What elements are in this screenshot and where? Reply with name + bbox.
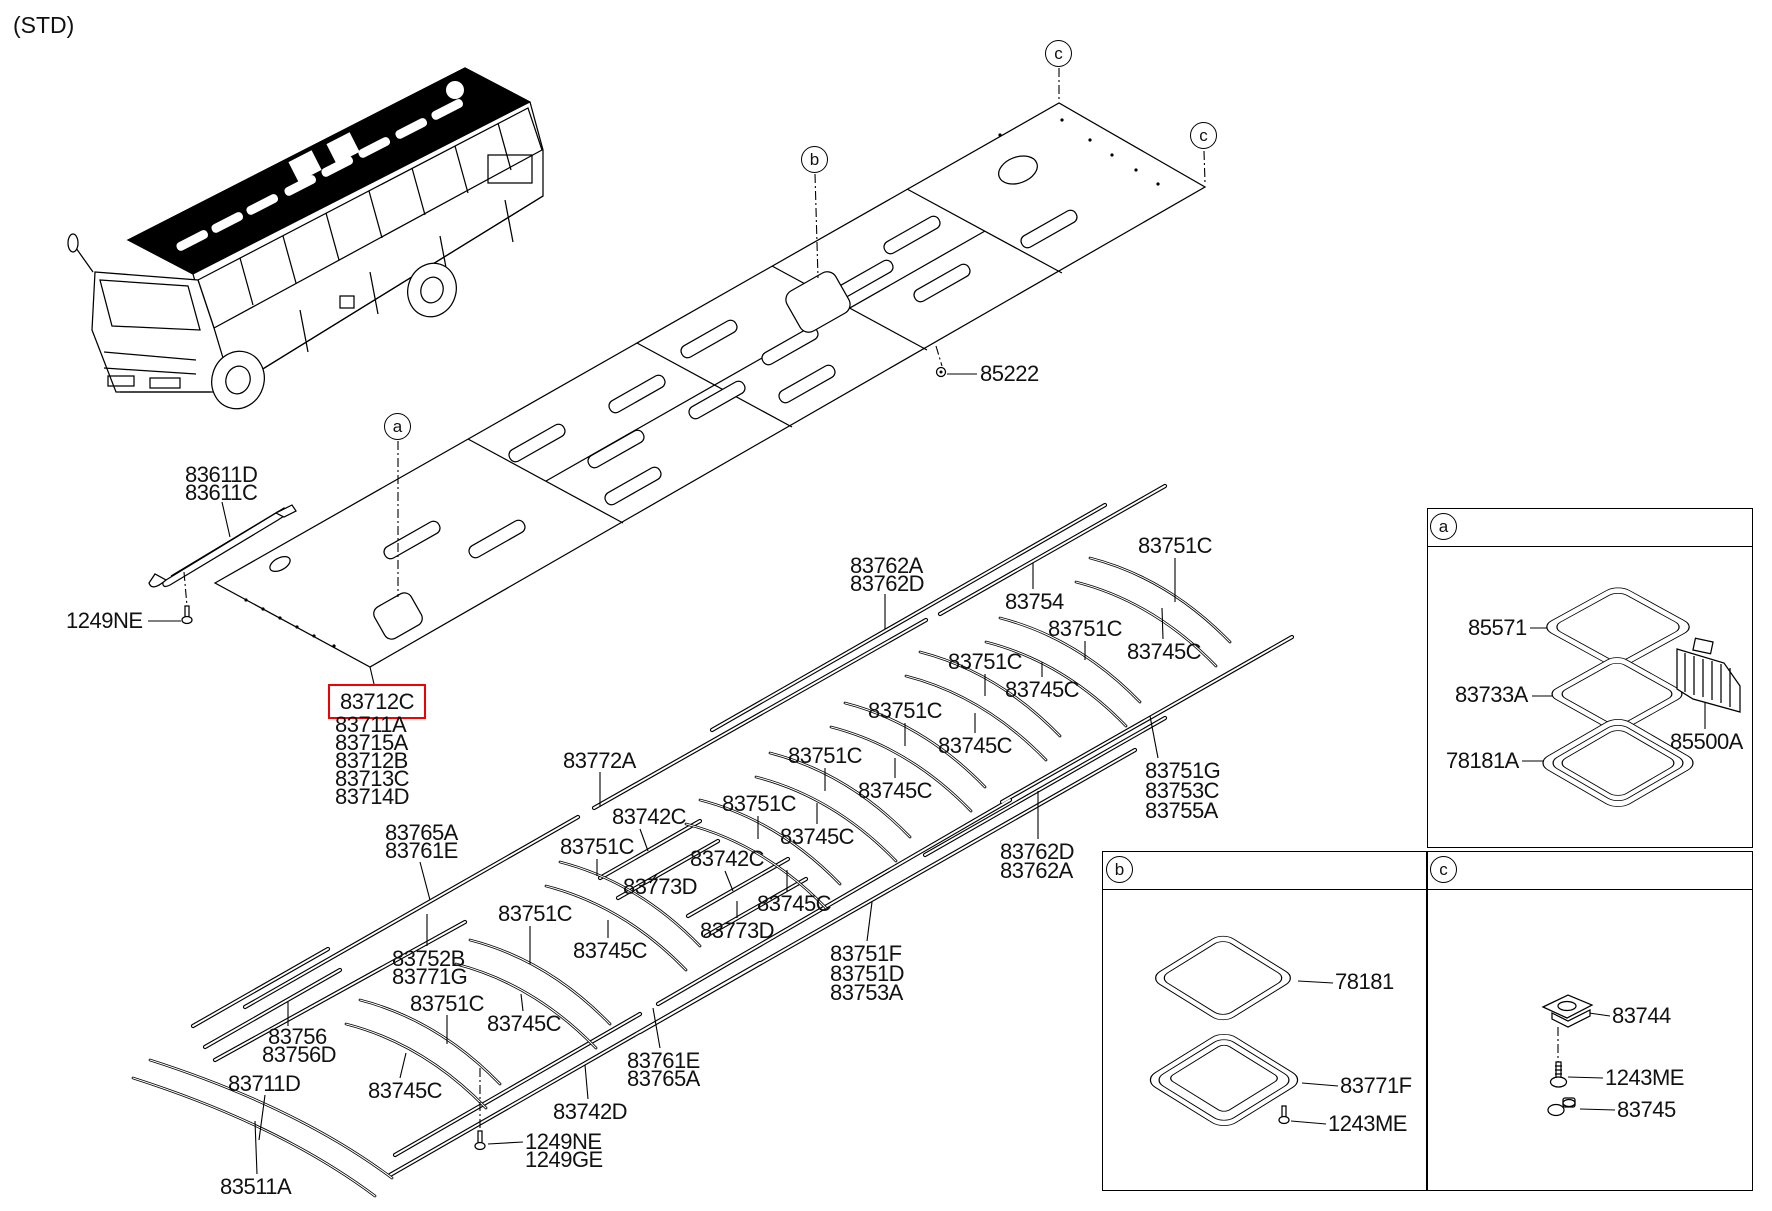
part-label-83751C: 83751C (560, 836, 634, 858)
part-label-83765A: 83765A (627, 1068, 700, 1090)
part-label-83751C: 83751C (948, 651, 1022, 673)
part-label-83714D: 83714D (335, 786, 409, 808)
part-label-83751C: 83751C (1138, 535, 1212, 557)
part-label-83745C: 83745C (938, 735, 1012, 757)
variant-tag: (STD) (13, 12, 74, 39)
part-label-83755A: 83755A (1145, 800, 1218, 822)
part-label-83745C: 83745C (573, 940, 647, 962)
part-label-83753A: 83753A (830, 982, 903, 1004)
part-label-83733A: 83733A (1455, 684, 1528, 706)
part-label-83771G: 83771G (392, 966, 467, 988)
part-label-83751C: 83751C (410, 993, 484, 1015)
part-label-85500A: 85500A (1670, 731, 1743, 753)
part-label-1243ME: 1243ME (1605, 1067, 1684, 1089)
detail-box-c-tag: c (1430, 856, 1457, 883)
detail-box-a-tag: a (1430, 513, 1457, 540)
part-label-83751C: 83751C (498, 903, 572, 925)
callout-c1: c (1045, 40, 1072, 67)
part-label-83756D: 83756D (262, 1044, 336, 1066)
part-label-83711D: 83711D (228, 1073, 300, 1095)
part-label-83751C: 83751C (722, 793, 796, 815)
part-label-83712C: 83712C (340, 689, 414, 715)
part-label-83745: 83745 (1617, 1099, 1676, 1121)
callout-c2: c (1190, 122, 1217, 149)
part-label-83754: 83754 (1005, 591, 1064, 613)
part-label-83773D: 83773D (623, 876, 697, 898)
part-label-1249GE: 1249GE (525, 1149, 603, 1171)
part-label-83745C: 83745C (757, 893, 831, 915)
part-label-83745C: 83745C (487, 1013, 561, 1035)
part-label-83762A: 83762A (1000, 860, 1073, 882)
part-label-85222: 85222 (980, 363, 1039, 385)
part-label-83511A: 83511A (220, 1176, 291, 1198)
detail-box-a (1427, 508, 1753, 848)
part-label-78181: 78181 (1335, 971, 1394, 993)
part-label-85571: 85571 (1468, 617, 1527, 639)
part-label-78181A: 78181A (1446, 750, 1519, 772)
part-label-83773D: 83773D (700, 920, 774, 942)
part-label-83742C: 83742C (690, 848, 764, 870)
part-label-83745C: 83745C (858, 780, 932, 802)
part-label-83745C: 83745C (1127, 641, 1201, 663)
callout-b: b (801, 146, 828, 173)
headlining-panel-strip (215, 103, 1205, 667)
part-label-83611C: 83611C (185, 482, 257, 504)
detail-box-c (1427, 851, 1753, 1191)
part-label-1249NE-left: 1249NE (66, 610, 143, 632)
part-label-83751C: 83751C (788, 745, 862, 767)
part-label-83761E: 83761E (385, 840, 458, 862)
part-label-83751C: 83751C (868, 700, 942, 722)
part-label-83745C: 83745C (780, 826, 854, 848)
callout-a: a (384, 413, 411, 440)
part-label-83745C: 83745C (1005, 679, 1079, 701)
detail-box-b (1102, 851, 1427, 1191)
detail-box-b-tag: b (1106, 856, 1133, 883)
bus-illustration (68, 68, 543, 416)
part-label-83762D: 83762D (850, 573, 924, 595)
part-label-83742D: 83742D (553, 1101, 627, 1123)
parts-diagram-page: (STD) a b c c a b c 83712C 83611D 83611C… (0, 0, 1772, 1211)
part-label-83772A: 83772A (563, 750, 636, 772)
part-label-83744: 83744 (1612, 1005, 1671, 1027)
part-label-83742C: 83742C (612, 806, 686, 828)
part-label-1243ME: 1243ME (1328, 1113, 1407, 1135)
part-label-83745C: 83745C (368, 1080, 442, 1102)
part-label-83771F: 83771F (1340, 1075, 1412, 1097)
part-label-83751C: 83751C (1048, 618, 1122, 640)
